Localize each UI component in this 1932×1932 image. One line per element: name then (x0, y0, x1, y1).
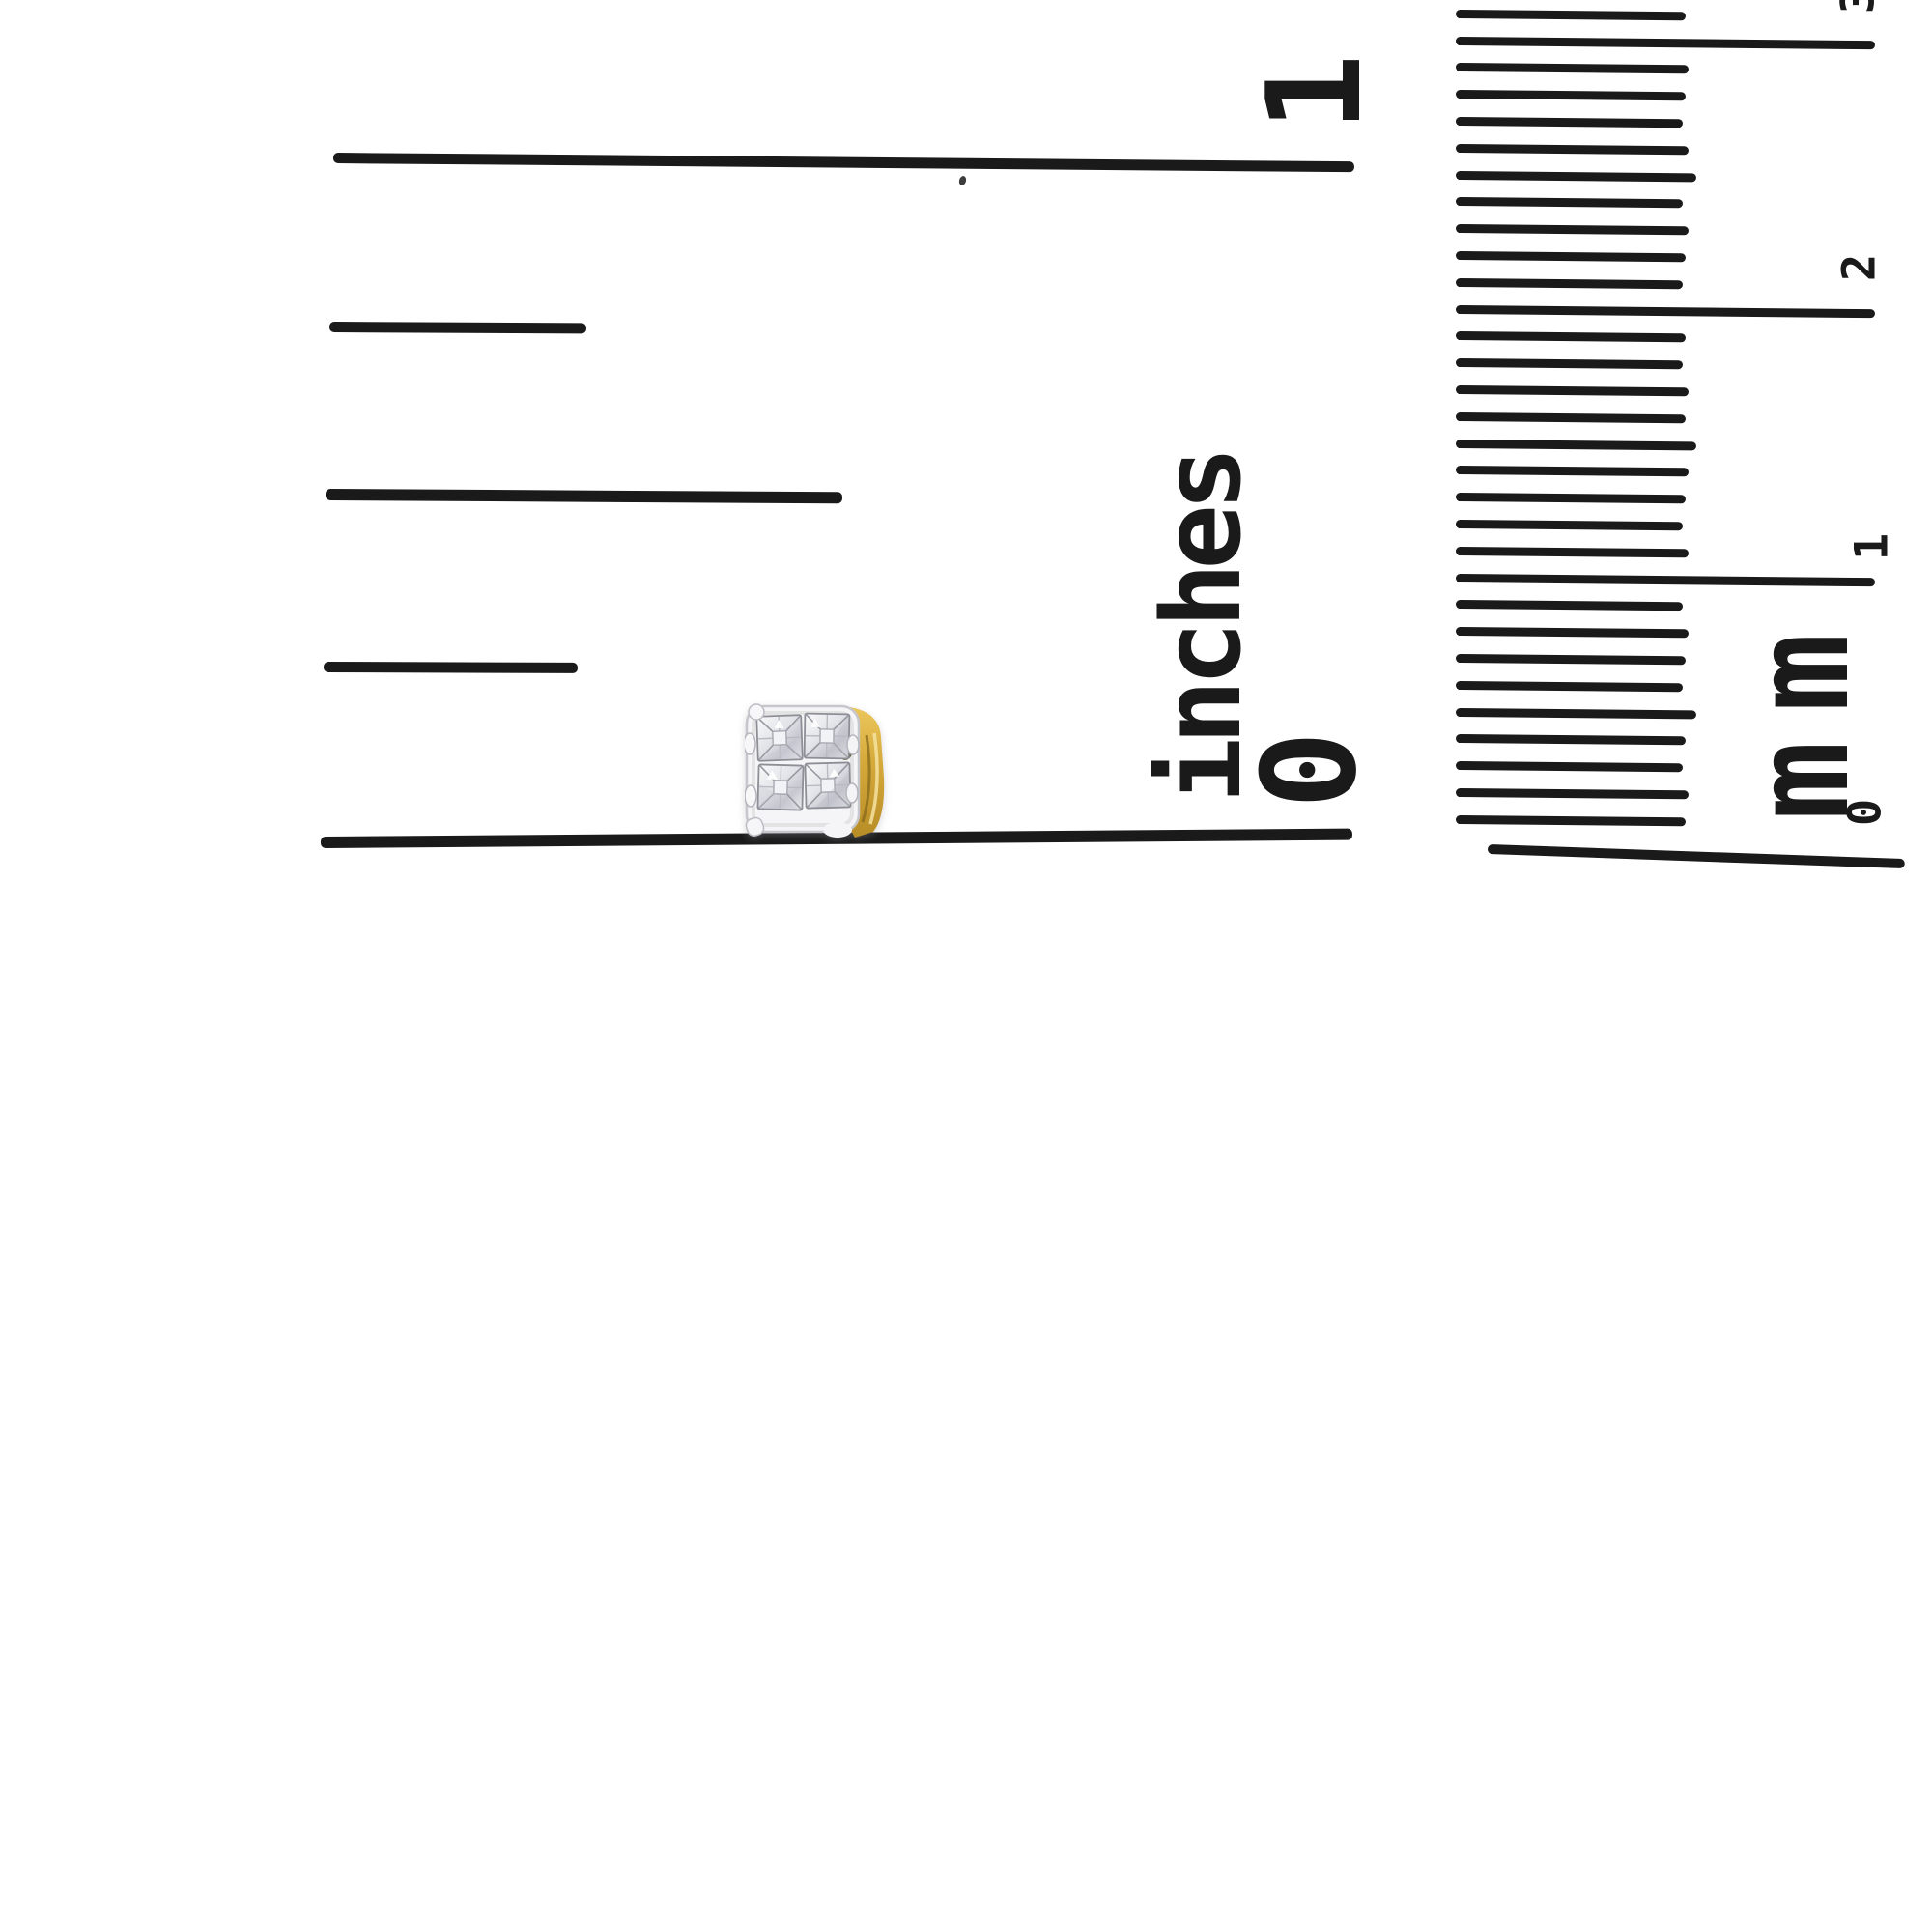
mm-tick-25-halfcm (1456, 171, 1696, 182)
inch-tick-1-4 (324, 662, 578, 673)
mm-tick-4-mm (1456, 734, 1686, 745)
mm-tick-5-halfcm (1456, 708, 1696, 719)
mm-tick-14-mm (1456, 466, 1689, 476)
mm-unit-label: mm (1737, 604, 1868, 820)
cm-label-1: 1 (1850, 533, 1895, 560)
mm-tick-24-mm (1456, 197, 1683, 208)
mm-tick-28-mm (1456, 90, 1686, 100)
mm-tick-20-cm (1456, 305, 1875, 318)
mm-tick-22-mm (1456, 251, 1686, 262)
prong-top-left (749, 704, 764, 720)
diamond-cluster-earring (745, 700, 888, 840)
mm-tick-21-mm (1456, 278, 1683, 289)
mm-tick-29-mm (1456, 63, 1689, 73)
mm-tick-27-mm (1456, 117, 1683, 128)
mm-tick-23-mm (1456, 224, 1689, 235)
bottom-metal-lobe (823, 822, 852, 838)
prong-left-lower (745, 785, 756, 807)
mm-tick-16-mm (1456, 412, 1686, 423)
mm-tick-19-mm (1456, 331, 1686, 342)
prong-right-upper (847, 735, 859, 754)
mm-tick-26-mm (1456, 144, 1689, 155)
mm-zero-line (1488, 844, 1905, 868)
mm-tick-10-cm (1456, 574, 1875, 586)
inch-label-1: 1 (1250, 54, 1379, 132)
mm-tick-8-mm (1456, 627, 1689, 638)
prong-right-lower (846, 783, 858, 803)
inch-label-0: 0 (1245, 731, 1375, 810)
inch-tick-1-2 (326, 489, 842, 503)
mm-tick-31-mm (1456, 10, 1686, 20)
mm-tick-9-mm (1456, 600, 1683, 611)
product-scale-photo: inches 1 0 mm 3 2 1 0 (0, 0, 1932, 1932)
mm-tick-13-mm (1456, 493, 1686, 503)
inch-tick-1 (333, 153, 1354, 172)
mm-tick-2-mm (1456, 788, 1689, 799)
diamond-stone-bottom-left (757, 764, 803, 810)
mm-tick-15-halfcm (1456, 440, 1696, 450)
cm-label-3: 3 (1836, 0, 1882, 14)
prong-left-upper (745, 733, 755, 754)
mm-tick-7-mm (1456, 654, 1686, 665)
mm-tick-30-cm (1456, 37, 1875, 49)
mm-tick-6-mm (1456, 681, 1683, 692)
mm-tick-12-mm (1456, 520, 1683, 530)
diamond-stone-top-left (756, 715, 803, 761)
cm-label-2: 2 (1837, 254, 1883, 281)
mm-tick-17-mm (1456, 385, 1689, 396)
mm-tick-1-mm (1456, 815, 1686, 826)
mm-tick-3-mm (1456, 761, 1683, 772)
ink-speck (958, 175, 967, 185)
cm-label-0: 0 (1843, 799, 1889, 826)
mm-tick-11-mm (1456, 547, 1689, 557)
inch-tick-3-4 (329, 322, 586, 333)
diamond-stone-bottom-right (805, 762, 850, 808)
diamond-stone-top-right (805, 714, 850, 759)
mm-tick-18-mm (1456, 358, 1683, 369)
